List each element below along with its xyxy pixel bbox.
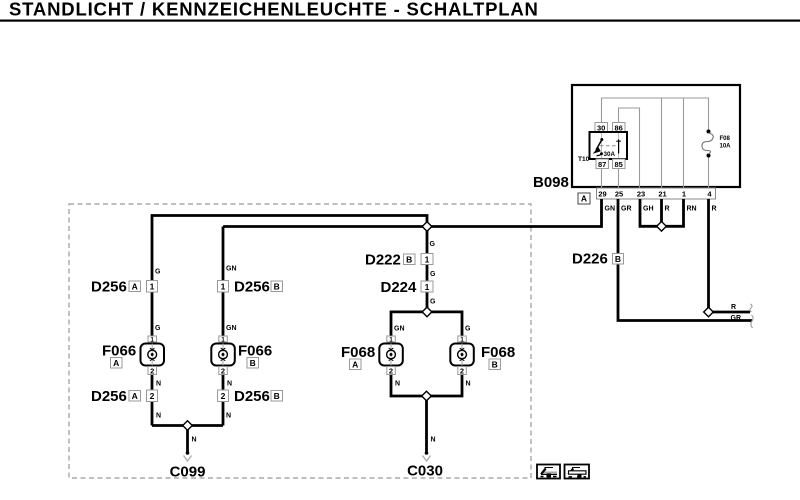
svg-text:G: G [430,299,436,306]
svg-text:10A: 10A [720,144,732,150]
svg-text:B: B [250,358,256,368]
svg-text:2: 2 [150,367,154,376]
svg-text:GN: GN [226,325,237,332]
svg-text:G: G [430,271,436,278]
svg-text:GR: GR [731,315,742,322]
svg-text:F08: F08 [720,136,731,142]
svg-text:T10: T10 [578,156,590,163]
svg-text:GR: GR [621,206,632,213]
svg-text:F066: F066 [238,343,272,360]
svg-text:D256: D256 [234,279,270,296]
svg-text:G: G [430,241,436,248]
svg-text:GN: GN [394,326,405,333]
svg-text:C030: C030 [407,463,443,480]
svg-text:D256: D256 [91,388,127,405]
svg-text:2: 2 [389,367,393,376]
svg-text:GN: GN [605,206,616,213]
svg-text:R: R [712,206,717,213]
svg-text:B098: B098 [533,174,569,191]
svg-text:D256: D256 [234,388,270,405]
svg-text:A: A [132,391,138,401]
svg-text:R: R [665,206,670,213]
svg-text:2: 2 [221,367,225,376]
svg-text:A: A [352,360,358,370]
svg-text:25: 25 [615,190,623,199]
svg-text:G: G [155,325,161,332]
svg-text:B: B [274,391,280,401]
svg-text:F068: F068 [341,344,375,361]
svg-text:2: 2 [150,391,155,401]
svg-text:N: N [466,381,471,388]
svg-text:G: G [465,326,471,333]
svg-text:G: G [155,269,161,276]
svg-text:1: 1 [425,282,430,292]
svg-text:87: 87 [598,160,606,169]
svg-text:2: 2 [221,391,226,401]
svg-text:A: A [132,282,138,292]
svg-text:N: N [431,437,436,444]
svg-text:D256: D256 [91,279,127,296]
svg-text:GN: GN [226,266,237,273]
svg-text:A: A [581,194,587,204]
svg-text:2: 2 [460,367,464,376]
svg-text:N: N [395,381,400,388]
svg-text:C099: C099 [170,464,206,481]
svg-text:D226: D226 [572,251,608,268]
svg-text:29: 29 [598,190,606,199]
svg-text:B: B [615,254,621,264]
svg-text:1: 1 [425,255,430,265]
svg-text:N: N [156,413,161,420]
svg-text:N: N [227,381,232,388]
svg-text:RN: RN [687,206,697,213]
svg-text:R: R [731,304,736,311]
svg-text:B: B [406,255,412,265]
svg-text:F066: F066 [102,343,136,360]
svg-text:D224: D224 [381,279,418,296]
svg-text:1: 1 [221,282,226,292]
svg-text:23: 23 [637,190,645,199]
svg-text:1: 1 [150,282,155,292]
svg-text:B: B [492,360,498,370]
svg-text:N: N [192,437,197,444]
svg-text:1: 1 [682,190,686,199]
svg-text:N: N [226,413,231,420]
svg-text:D222: D222 [365,252,401,269]
svg-text:30A: 30A [604,151,616,158]
svg-text:N: N [156,381,161,388]
svg-text:B: B [274,282,280,292]
svg-text:GH: GH [643,206,654,213]
svg-text:A: A [113,358,119,368]
svg-text:85: 85 [615,160,623,169]
svg-text:F068: F068 [481,344,515,361]
svg-text:21: 21 [658,190,666,199]
svg-text:STANDLICHT / KENNZEICHENLEUCHT: STANDLICHT / KENNZEICHENLEUCHTE - SCHALT… [9,0,539,20]
